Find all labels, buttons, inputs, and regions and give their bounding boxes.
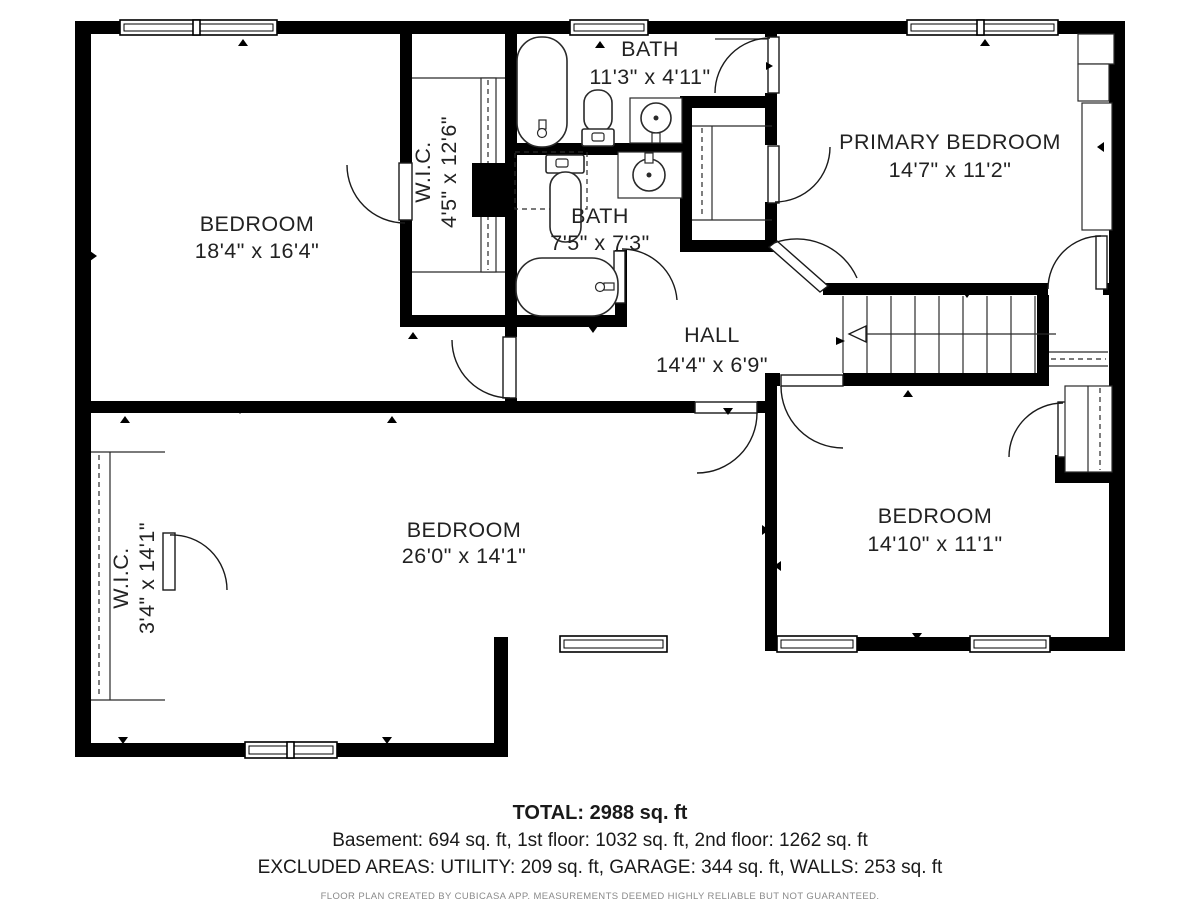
area-summary: TOTAL: 2988 sq. ft Basement: 694 sq. ft,… [0, 799, 1200, 900]
door [347, 163, 412, 223]
door [452, 337, 516, 398]
room-label-primary: PRIMARY BEDROOM [839, 130, 1061, 154]
chase-void [472, 163, 517, 217]
bathtub-icon [517, 37, 567, 147]
room-label-hall: HALL [684, 323, 740, 347]
window [907, 20, 1058, 35]
room-label-bath-top: BATH [621, 37, 679, 61]
room-label-bedroom-tl: BEDROOM [200, 212, 315, 236]
door [781, 375, 843, 448]
room-label-bath-mid: BATH [571, 204, 629, 228]
total-area-text: TOTAL: 2988 sq. ft [0, 799, 1200, 827]
window [560, 636, 667, 652]
window [777, 636, 857, 652]
window [970, 636, 1050, 652]
door [1048, 236, 1107, 289]
door [614, 249, 677, 303]
bathtub-icon [516, 258, 618, 316]
window [245, 742, 337, 758]
floor-plan-canvas: BEDROOM 18'4" x 16'4" W.I.C. 4'5" x 12'6… [0, 0, 1200, 900]
disclaimer-text: FLOOR PLAN CREATED BY CUBICASA APP. MEAS… [0, 891, 1200, 900]
sink-icon [618, 152, 682, 198]
door [1009, 402, 1068, 457]
room-label-wic-top: W.I.C. [411, 141, 435, 203]
room-dims-bedroom-br: 14'10" x 11'1" [867, 532, 1002, 556]
room-dims-wic-bottom: 3'4" x 14'1" [135, 522, 159, 634]
room-dims-bath-mid: 7'5" x 7'3" [550, 231, 650, 255]
door [163, 533, 227, 590]
room-dims-bath-top: 11'3" x 4'11" [589, 65, 710, 89]
door [695, 402, 757, 473]
room-label-bedroom-br: BEDROOM [878, 504, 993, 528]
closet-rod-bedroom-br [1065, 386, 1112, 472]
room-dims-hall: 14'4" x 6'9" [656, 353, 768, 377]
room-label-bedroom-bm: BEDROOM [407, 518, 522, 542]
floors-area-text: Basement: 694 sq. ft, 1st floor: 1032 sq… [0, 827, 1200, 854]
floor-plan-page: BEDROOM 18'4" x 16'4" W.I.C. 4'5" x 12'6… [0, 0, 1200, 900]
stair-landing-shelf [1049, 352, 1108, 366]
toilet-icon [515, 152, 587, 242]
window [570, 20, 648, 35]
room-label-wic-bottom: W.I.C. [109, 547, 133, 609]
wardrobe-furniture [1078, 34, 1114, 230]
stairs [843, 296, 1108, 373]
room-dims-wic-top: 4'5" x 12'6" [437, 116, 461, 228]
stair-direction-arrow [849, 326, 1056, 342]
window [120, 20, 277, 35]
room-dims-bedroom-tl: 18'4" x 16'4" [195, 239, 319, 263]
room-dims-bedroom-bm: 26'0" x 14'1" [402, 544, 526, 568]
room-dims-primary: 14'7" x 11'2" [889, 158, 1012, 182]
toilet-icon [582, 90, 614, 146]
closet-rod-primary [692, 126, 772, 220]
sink-icon [630, 98, 682, 143]
room-labels: BEDROOM 18'4" x 16'4" W.I.C. 4'5" x 12'6… [109, 37, 1061, 634]
door [768, 146, 830, 203]
excluded-area-text: EXCLUDED AREAS: UTILITY: 209 sq. ft, GAR… [0, 854, 1200, 881]
